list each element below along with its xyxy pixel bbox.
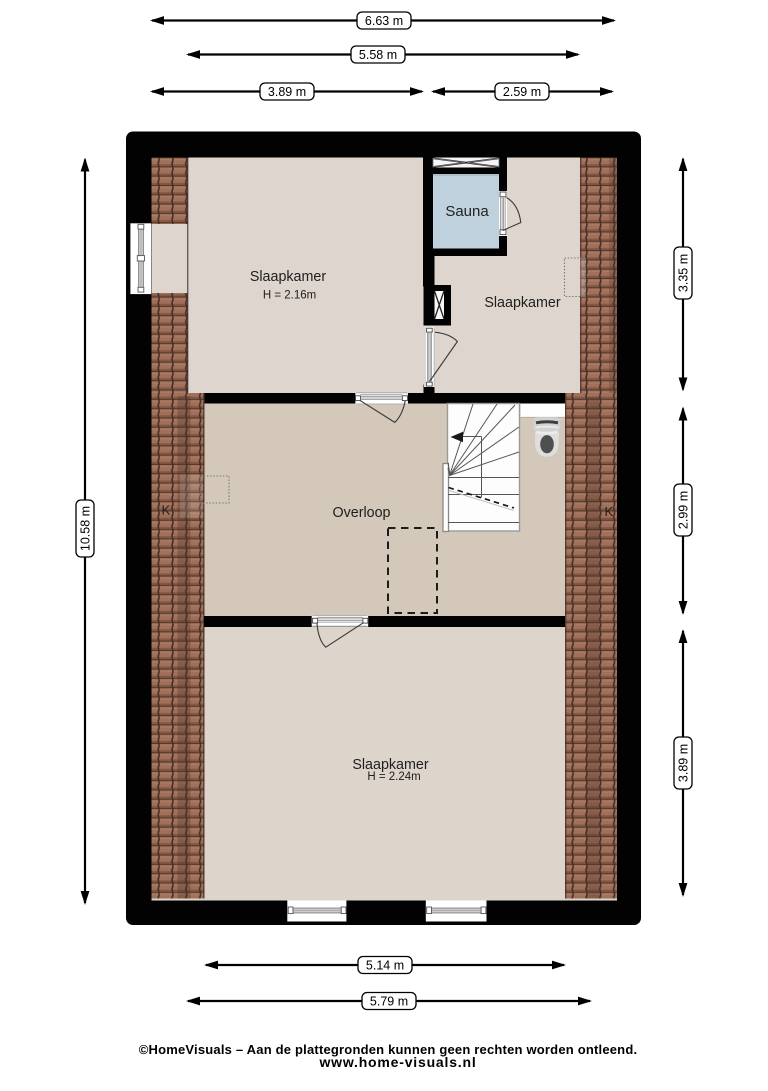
svg-text:6.63 m: 6.63 m [365, 14, 403, 28]
svg-text:www.home-visuals.nl: www.home-visuals.nl [318, 1054, 476, 1070]
svg-text:3.89 m: 3.89 m [268, 85, 306, 99]
svg-text:5.79 m: 5.79 m [370, 995, 408, 1009]
svg-text:5.14 m: 5.14 m [366, 959, 404, 973]
svg-text:Slaapkamer: Slaapkamer [250, 269, 327, 285]
svg-text:Overloop: Overloop [332, 505, 390, 521]
svg-text:3.35 m: 3.35 m [677, 254, 691, 292]
svg-text:5.58 m: 5.58 m [359, 48, 397, 62]
svg-text:Slaapkamer: Slaapkamer [484, 295, 561, 311]
svg-text:10.58 m: 10.58 m [79, 506, 93, 551]
svg-text:H = 2.24m: H = 2.24m [367, 771, 420, 783]
svg-text:K: K [605, 504, 614, 519]
svg-text:3.89 m: 3.89 m [677, 744, 691, 782]
svg-text:K: K [162, 503, 171, 518]
svg-text:2.59 m: 2.59 m [503, 85, 541, 99]
svg-text:Sauna: Sauna [445, 203, 489, 220]
svg-text:2.99 m: 2.99 m [677, 491, 691, 529]
svg-text:H = 2.16m: H = 2.16m [263, 290, 316, 302]
